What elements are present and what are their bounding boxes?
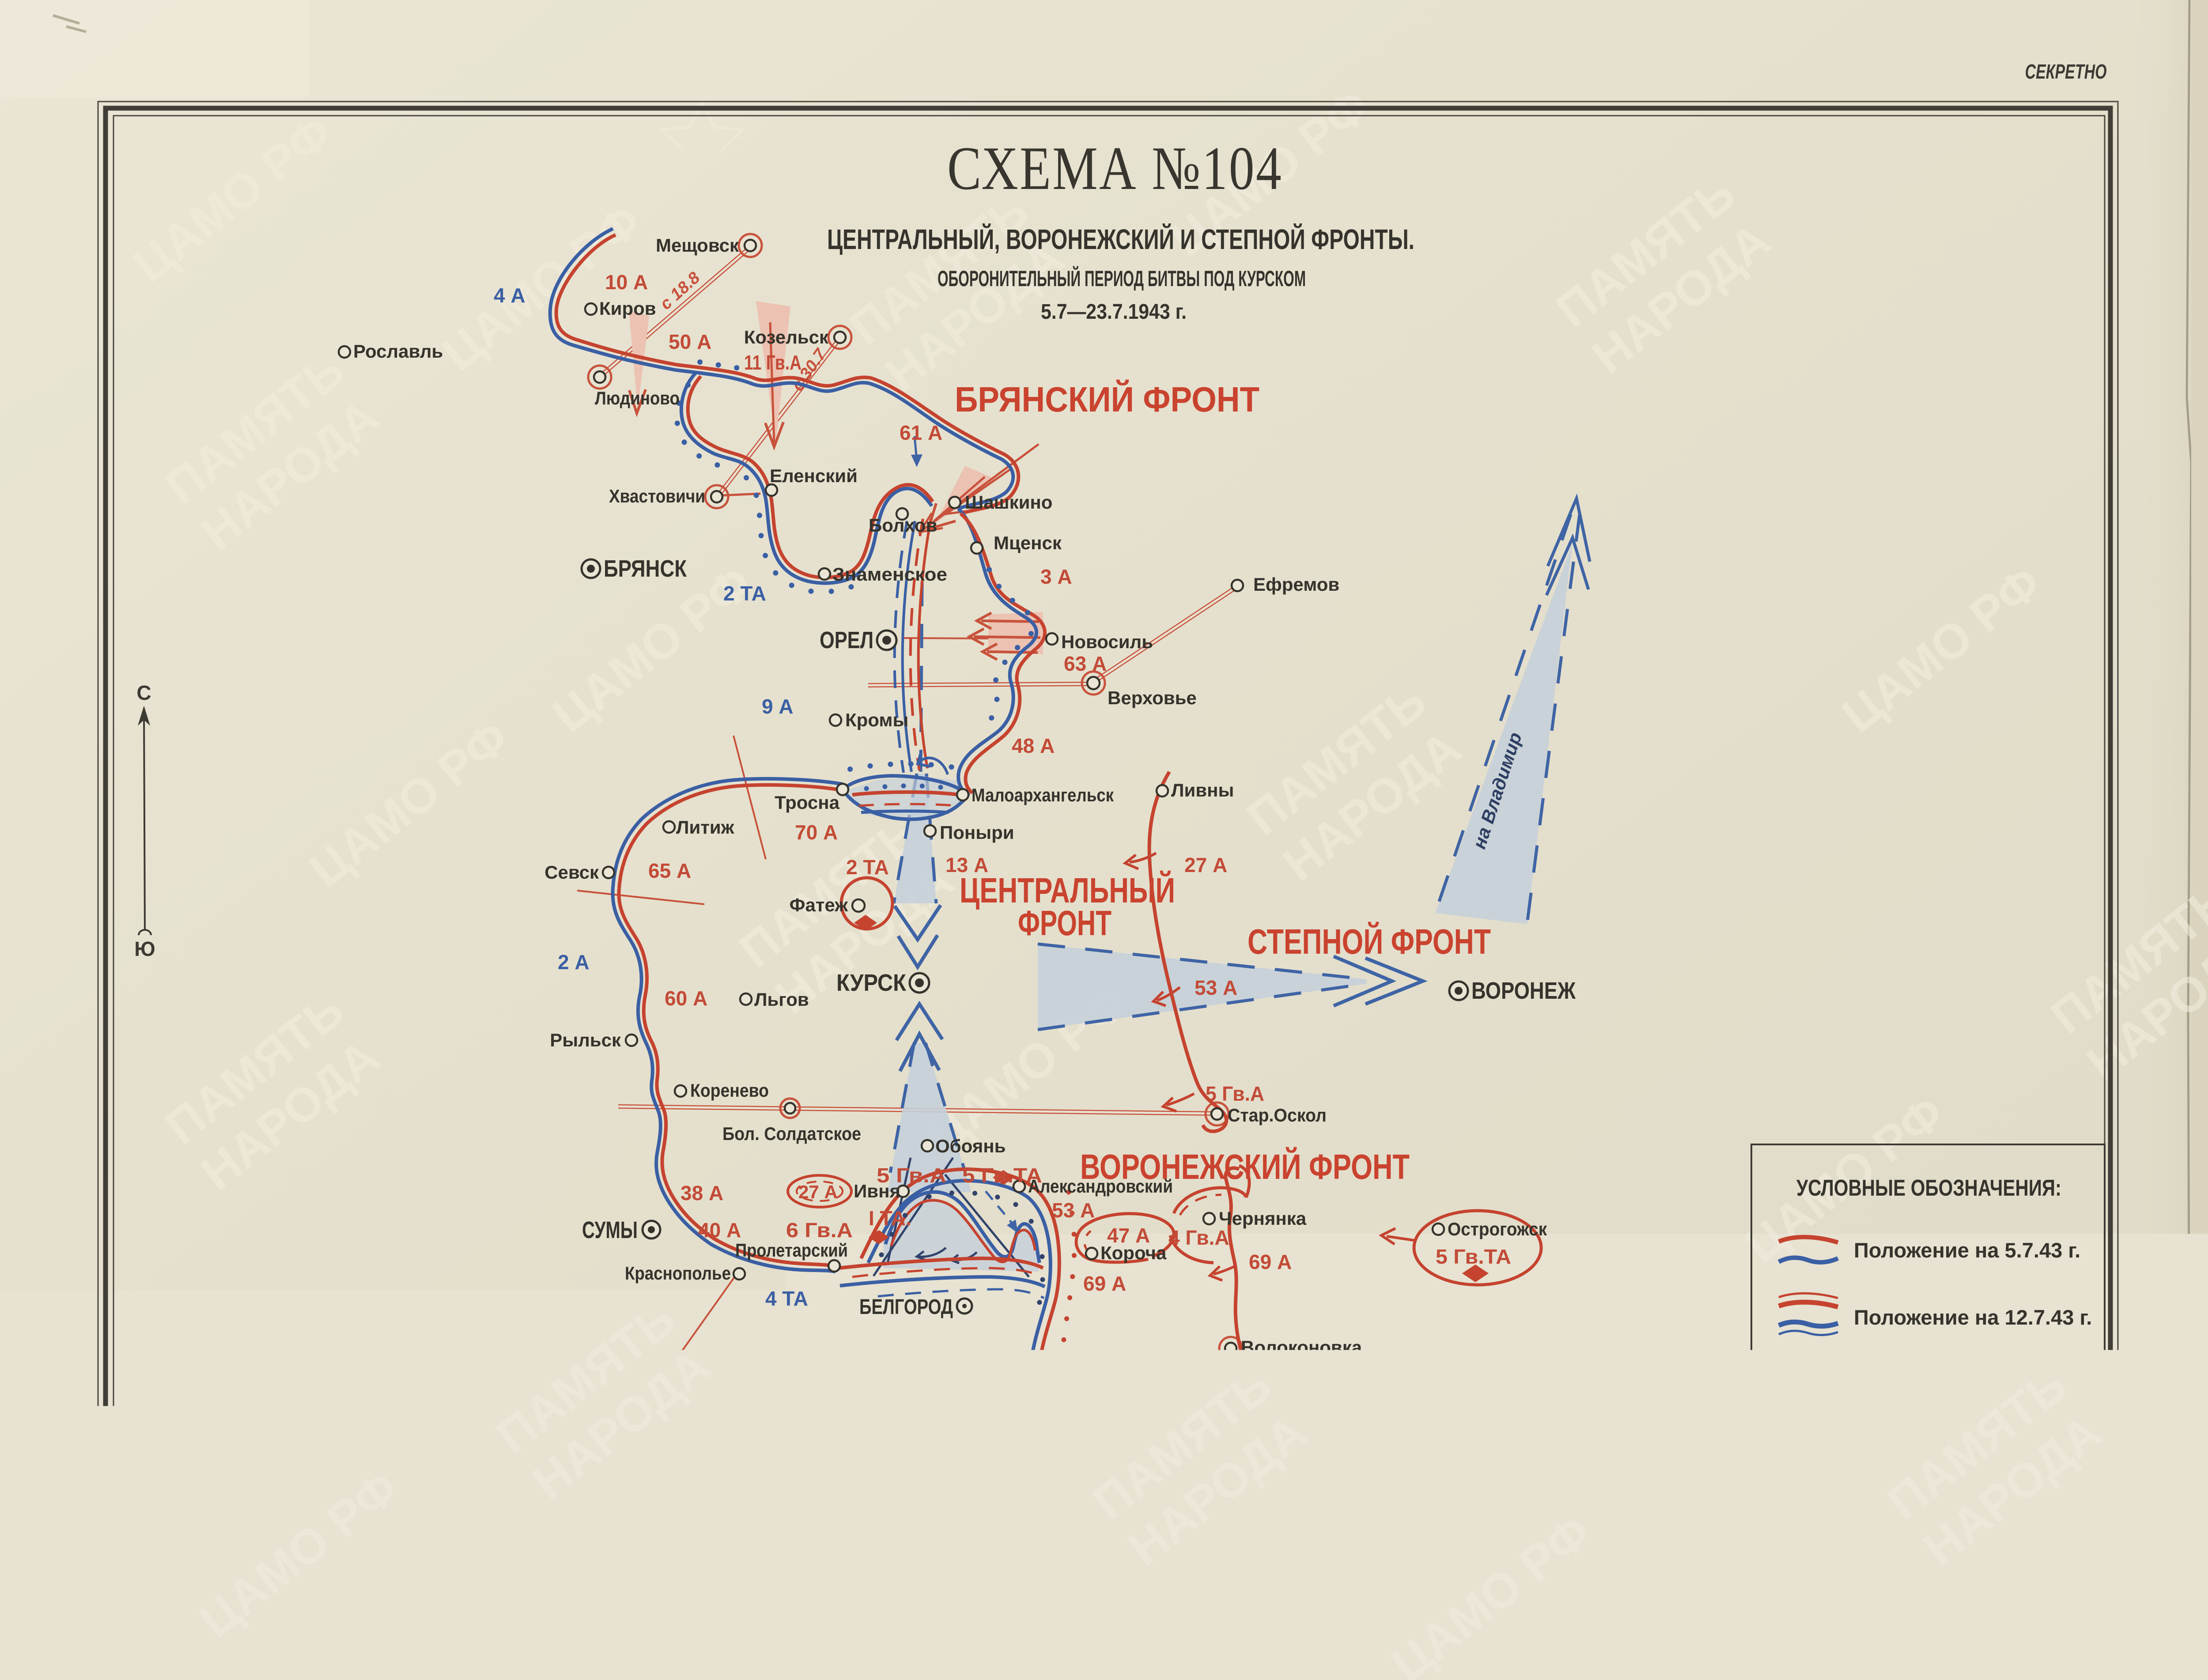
svg-text:27 А: 27 А [798, 1182, 838, 1202]
svg-text:Козельск: Козельск [744, 327, 829, 347]
svg-text:ВОРОНЕЖ: ВОРОНЕЖ [1471, 978, 1576, 1004]
svg-text:Волоконовка: Волоконовка [1241, 1337, 1362, 1358]
svg-text:Бол. Солдатское: Бол. Солдатское [722, 1123, 861, 1144]
svg-text:Литиж: Литиж [676, 817, 735, 838]
svg-text:70 А: 70 А [795, 821, 838, 844]
svg-text:47 А: 47 А [1521, 1442, 1564, 1465]
svg-text:112: 112 [1095, 1588, 1129, 1613]
svg-text:Новосиль: Новосиль [1061, 631, 1153, 652]
svg-text:БЕЛГОРОД: БЕЛГОРОД [859, 1295, 953, 1319]
svg-text:ЮГО-ЗАПАДНЫЙ ФРОНТ: ЮГО-ЗАПАДНЫЙ ФРОНТ [1124, 1457, 1461, 1495]
svg-text:4 А: 4 А [494, 284, 526, 307]
svg-text:УСЛОВНЫЕ ОБОЗНАЧЕНИЯ:: УСЛОВНЫЕ ОБОЗНАЧЕНИЯ: [1796, 1175, 2061, 1201]
svg-text:10 А: 10 А [605, 271, 648, 294]
svg-text:Поныри: Поныри [940, 822, 1014, 843]
svg-text:48 А: 48 А [1012, 734, 1055, 757]
svg-text:СТЕПНОЙ ФРОНТ: СТЕПНОЙ ФРОНТ [1248, 921, 1491, 961]
svg-text:2 ТА: 2 ТА [723, 582, 766, 605]
svg-text:Положение на 12.7.43 г.: Положение на 12.7.43 г. [1854, 1306, 2092, 1329]
svg-text:Волчанск: Волчанск [1070, 1398, 1149, 1419]
svg-text:Кромы: Кромы [845, 710, 908, 730]
svg-text:53 А: 53 А [1052, 1199, 1095, 1222]
svg-text:53 А: 53 А [1195, 976, 1237, 999]
svg-text:2 А: 2 А [558, 951, 590, 974]
svg-text:Краснополье: Краснополье [625, 1263, 731, 1284]
svg-text:Людиново: Людиново [595, 388, 680, 408]
svg-text:50 А: 50 А [669, 330, 711, 353]
svg-text:СУМЫ: СУМЫ [582, 1217, 638, 1243]
svg-text:Тросна: Тросна [775, 792, 840, 813]
svg-text:Фатеж: Фатеж [790, 895, 849, 915]
svg-text:Еленский: Еленский [770, 465, 858, 486]
svg-text:СЕКРЕТНО: СЕКРЕТНО [2025, 60, 2107, 83]
svg-text:ВОРОНЕЖСКИЙ ФРОНТ: ВОРОНЕЖСКИЙ ФРОНТ [1080, 1147, 1410, 1186]
svg-text:Чернянка: Чернянка [1219, 1208, 1307, 1229]
svg-text:Знаменское: Знаменское [832, 564, 947, 585]
svg-text:С: С [136, 681, 151, 704]
svg-text:5.7—23.7.1943 г.: 5.7—23.7.1943 г. [1041, 300, 1187, 324]
svg-text:47 А: 47 А [1107, 1224, 1150, 1247]
svg-text:АРМ. ГРУППА „КЕМПФ”: АРМ. ГРУППА „КЕМПФ” [778, 1395, 1042, 1423]
svg-text:Мценск: Мценск [994, 532, 1062, 553]
svg-text:38 А: 38 А [681, 1182, 723, 1204]
svg-text:ОРЕЛ: ОРЕЛ [820, 627, 873, 653]
svg-text:Стар.Оскол: Стар.Оскол [1228, 1105, 1327, 1125]
svg-text:Верховье: Верховье [1108, 687, 1197, 708]
svg-text:2 ТА: 2 ТА [846, 856, 889, 879]
svg-text:6 Гв.А: 6 Гв.А [786, 1219, 853, 1242]
svg-text:5 Гв.ТА: 5 Гв.ТА [1436, 1245, 1511, 1268]
svg-text:Рославль: Рославль [353, 341, 443, 362]
svg-text:Рыльск: Рыльск [550, 1030, 621, 1050]
svg-text:БРЯНСКИЙ ФРОНТ: БРЯНСКИЙ ФРОНТ [955, 379, 1259, 419]
svg-text:27 А: 27 А [1184, 853, 1227, 876]
svg-text:Направления ударов.: Направления ударов. [1863, 1501, 2086, 1524]
svg-text:Коренево: Коренево [690, 1080, 769, 1101]
svg-text:Положение на 23.7.43 г.: Положение на 23.7.43 г. [1854, 1437, 2092, 1461]
svg-text:Острогожск: Острогожск [1448, 1219, 1547, 1239]
svg-text:Льгов: Льгов [754, 989, 809, 1010]
svg-text:60 А: 60 А [665, 987, 707, 1010]
svg-text:69 А: 69 А [1083, 1272, 1126, 1295]
svg-text:ОБОРОНИТЕЛЬНЫЙ ПЕРИОД БИТВЫ ПО: ОБОРОНИТЕЛЬНЫЙ ПЕРИОД БИТВЫ ПОД КУРСКОМ [938, 266, 1306, 291]
svg-text:Болхов: Болхов [869, 515, 937, 536]
svg-text:БРЯНСК: БРЯНСК [604, 555, 687, 582]
svg-text:63 А: 63 А [1064, 652, 1107, 675]
svg-text:61 А: 61 А [900, 421, 942, 444]
svg-text:Масштаб 1:2 000 000: Масштаб 1:2 000 000 [161, 1511, 410, 1539]
svg-text:Россошь: Россошь [1545, 1405, 1626, 1426]
svg-text:Положение на 5.7.43 г.: Положение на 5.7.43 г. [1854, 1238, 2080, 1262]
svg-text:3 А: 3 А [1040, 565, 1072, 588]
svg-text:Мещовск: Мещовск [656, 235, 739, 256]
svg-text:4 ТА: 4 ТА [765, 1287, 808, 1310]
svg-text:Хвастовичи: Хвастовичи [609, 486, 705, 506]
svg-text:ЦЕНТРАЛЬНЫЙ, ВОРОНЕЖСКИЙ И СТЕ: ЦЕНТРАЛЬНЫЙ, ВОРОНЕЖСКИЙ И СТЕПНОЙ ФРОНТ… [827, 223, 1414, 255]
svg-text:ФРОНТ: ФРОНТ [1018, 903, 1112, 943]
svg-text:5 Гв.ТА: 5 Гв.ТА [962, 1164, 1042, 1187]
svg-text:Ю: Ю [134, 937, 155, 960]
svg-text:Ефремов: Ефремов [1253, 574, 1339, 595]
svg-text:Ливны: Ливны [1171, 780, 1234, 800]
svg-text:5 Гв.А: 5 Гв.А [1206, 1082, 1264, 1105]
svg-text:5 Гв.А: 5 Гв.А [877, 1164, 946, 1187]
svg-text:I ТА.: I ТА. [869, 1207, 911, 1230]
svg-text:СХЕМА №104: СХЕМА №104 [947, 134, 1283, 203]
svg-text:Обоянь: Обоянь [935, 1136, 1006, 1156]
svg-text:4 Гв.А: 4 Гв.А [1168, 1226, 1229, 1249]
svg-text:Положение на 18.7.43 г.: Положение на 18.7.43 г. [1854, 1371, 2092, 1394]
svg-text:40 А: 40 А [698, 1219, 741, 1242]
svg-text:7 Гв.А: 7 Гв.А [1046, 1358, 1104, 1381]
svg-text:69 А: 69 А [1249, 1250, 1292, 1273]
svg-text:57 А: 57 А [1077, 1433, 1120, 1456]
svg-text:ХАРЬКОВ: ХАРЬКОВ [939, 1489, 1049, 1515]
svg-text:65 А: 65 А [648, 859, 691, 882]
svg-text:КУРСК: КУРСК [836, 970, 907, 996]
svg-text:9 А: 9 А [762, 695, 794, 718]
svg-text:Малоархангельск: Малоархангельск [972, 785, 1114, 805]
svg-text:Пролетарский: Пролетарский [735, 1240, 848, 1261]
svg-text:Киров: Киров [599, 298, 656, 319]
svg-text:11 Гв.А: 11 Гв.А [744, 351, 802, 374]
svg-text:Шашкино: Шашкино [965, 492, 1052, 513]
svg-text:Севск: Севск [544, 862, 599, 883]
